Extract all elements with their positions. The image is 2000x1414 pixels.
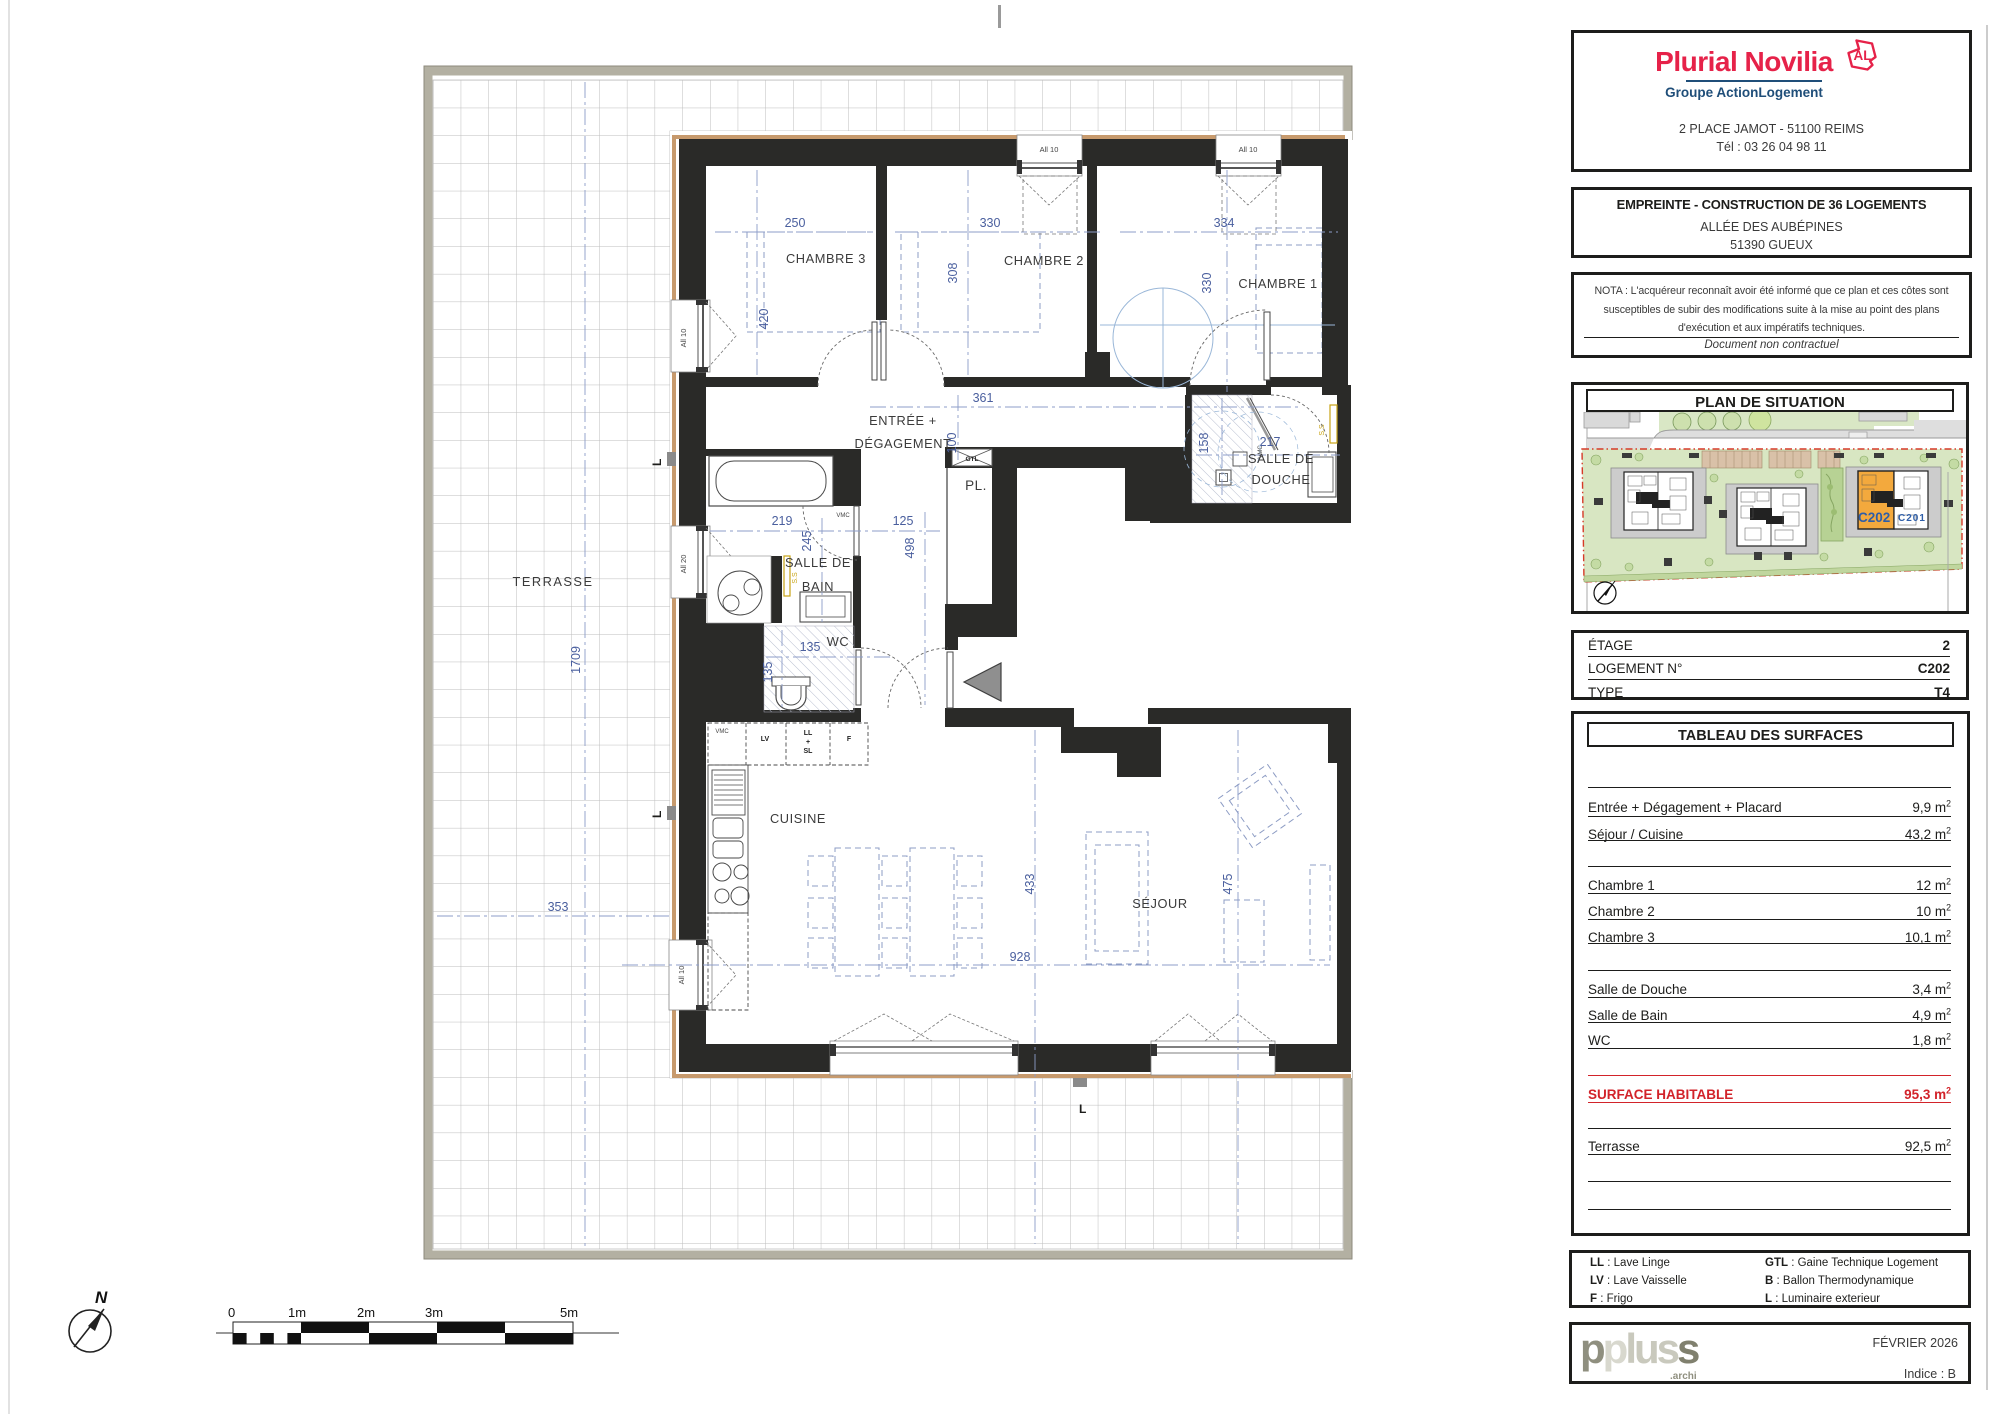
svg-text:VMC: VMC [715, 729, 729, 735]
svg-text:1709: 1709 [569, 646, 583, 674]
svg-text:All 10: All 10 [1040, 145, 1059, 154]
svg-text:334: 334 [1214, 216, 1235, 230]
svg-text:250: 250 [785, 216, 806, 230]
svg-text:L: L [1079, 1102, 1086, 1116]
svg-text:L: L [650, 459, 664, 466]
svg-text:158: 158 [1197, 433, 1211, 454]
svg-text:433: 433 [1023, 874, 1037, 895]
svg-text:2m: 2m [357, 1305, 375, 1320]
svg-text:SÉJOUR: SÉJOUR [1132, 896, 1188, 911]
svg-text:135: 135 [761, 662, 775, 683]
svg-text:LV: LV [761, 736, 770, 743]
svg-text:SL: SL [804, 748, 814, 755]
svg-text:475: 475 [1221, 874, 1235, 895]
svg-text:DOUCHE: DOUCHE [1251, 472, 1310, 487]
svg-text:S.S: S.S [792, 572, 799, 584]
svg-text:PL.: PL. [965, 478, 987, 493]
svg-text:217: 217 [1260, 435, 1281, 449]
svg-text:330: 330 [1200, 273, 1214, 294]
svg-text:3m: 3m [425, 1305, 443, 1320]
svg-text:308: 308 [946, 263, 960, 284]
svg-text:5m: 5m [560, 1305, 578, 1320]
svg-text:219: 219 [772, 514, 793, 528]
svg-text:125: 125 [893, 514, 914, 528]
svg-text:SALLE DE: SALLE DE [785, 555, 851, 570]
svg-text:CHAMBRE 2: CHAMBRE 2 [1004, 253, 1084, 268]
svg-text:All 10: All 10 [679, 329, 688, 348]
svg-text:1m: 1m [288, 1305, 306, 1320]
svg-text:VMC: VMC [836, 513, 850, 519]
svg-text:928: 928 [1010, 950, 1031, 964]
svg-text:DÉGAGEMENT: DÉGAGEMENT [854, 436, 951, 451]
svg-text:All 20: All 20 [679, 555, 688, 574]
svg-text:245: 245 [800, 531, 814, 552]
svg-text:GTL: GTL [966, 456, 979, 463]
svg-text:F: F [847, 736, 852, 743]
svg-text:WC: WC [827, 634, 850, 649]
svg-text:CUISINE: CUISINE [770, 811, 826, 826]
svg-text:CHAMBRE 3: CHAMBRE 3 [786, 251, 866, 266]
svg-text:353: 353 [548, 900, 569, 914]
svg-text:All 10: All 10 [677, 966, 686, 985]
svg-text:330: 330 [980, 216, 1001, 230]
svg-text:135: 135 [800, 640, 821, 654]
svg-text:420: 420 [757, 309, 771, 330]
svg-text:L: L [650, 811, 664, 818]
svg-text:ENTRÉE +: ENTRÉE + [869, 413, 937, 428]
svg-text:CHAMBRE 1: CHAMBRE 1 [1238, 276, 1317, 291]
svg-text:498: 498 [903, 538, 917, 559]
svg-text:N: N [95, 1288, 108, 1307]
svg-text:361: 361 [973, 391, 994, 405]
svg-text:BAIN: BAIN [802, 579, 834, 594]
svg-text:0: 0 [228, 1305, 235, 1320]
svg-text:LL: LL [804, 730, 813, 737]
svg-text:SALLE DE: SALLE DE [1248, 451, 1314, 466]
svg-text:TERRASSE: TERRASSE [513, 574, 594, 589]
svg-text:All 10: All 10 [1239, 145, 1258, 154]
svg-text:+: + [806, 739, 810, 746]
